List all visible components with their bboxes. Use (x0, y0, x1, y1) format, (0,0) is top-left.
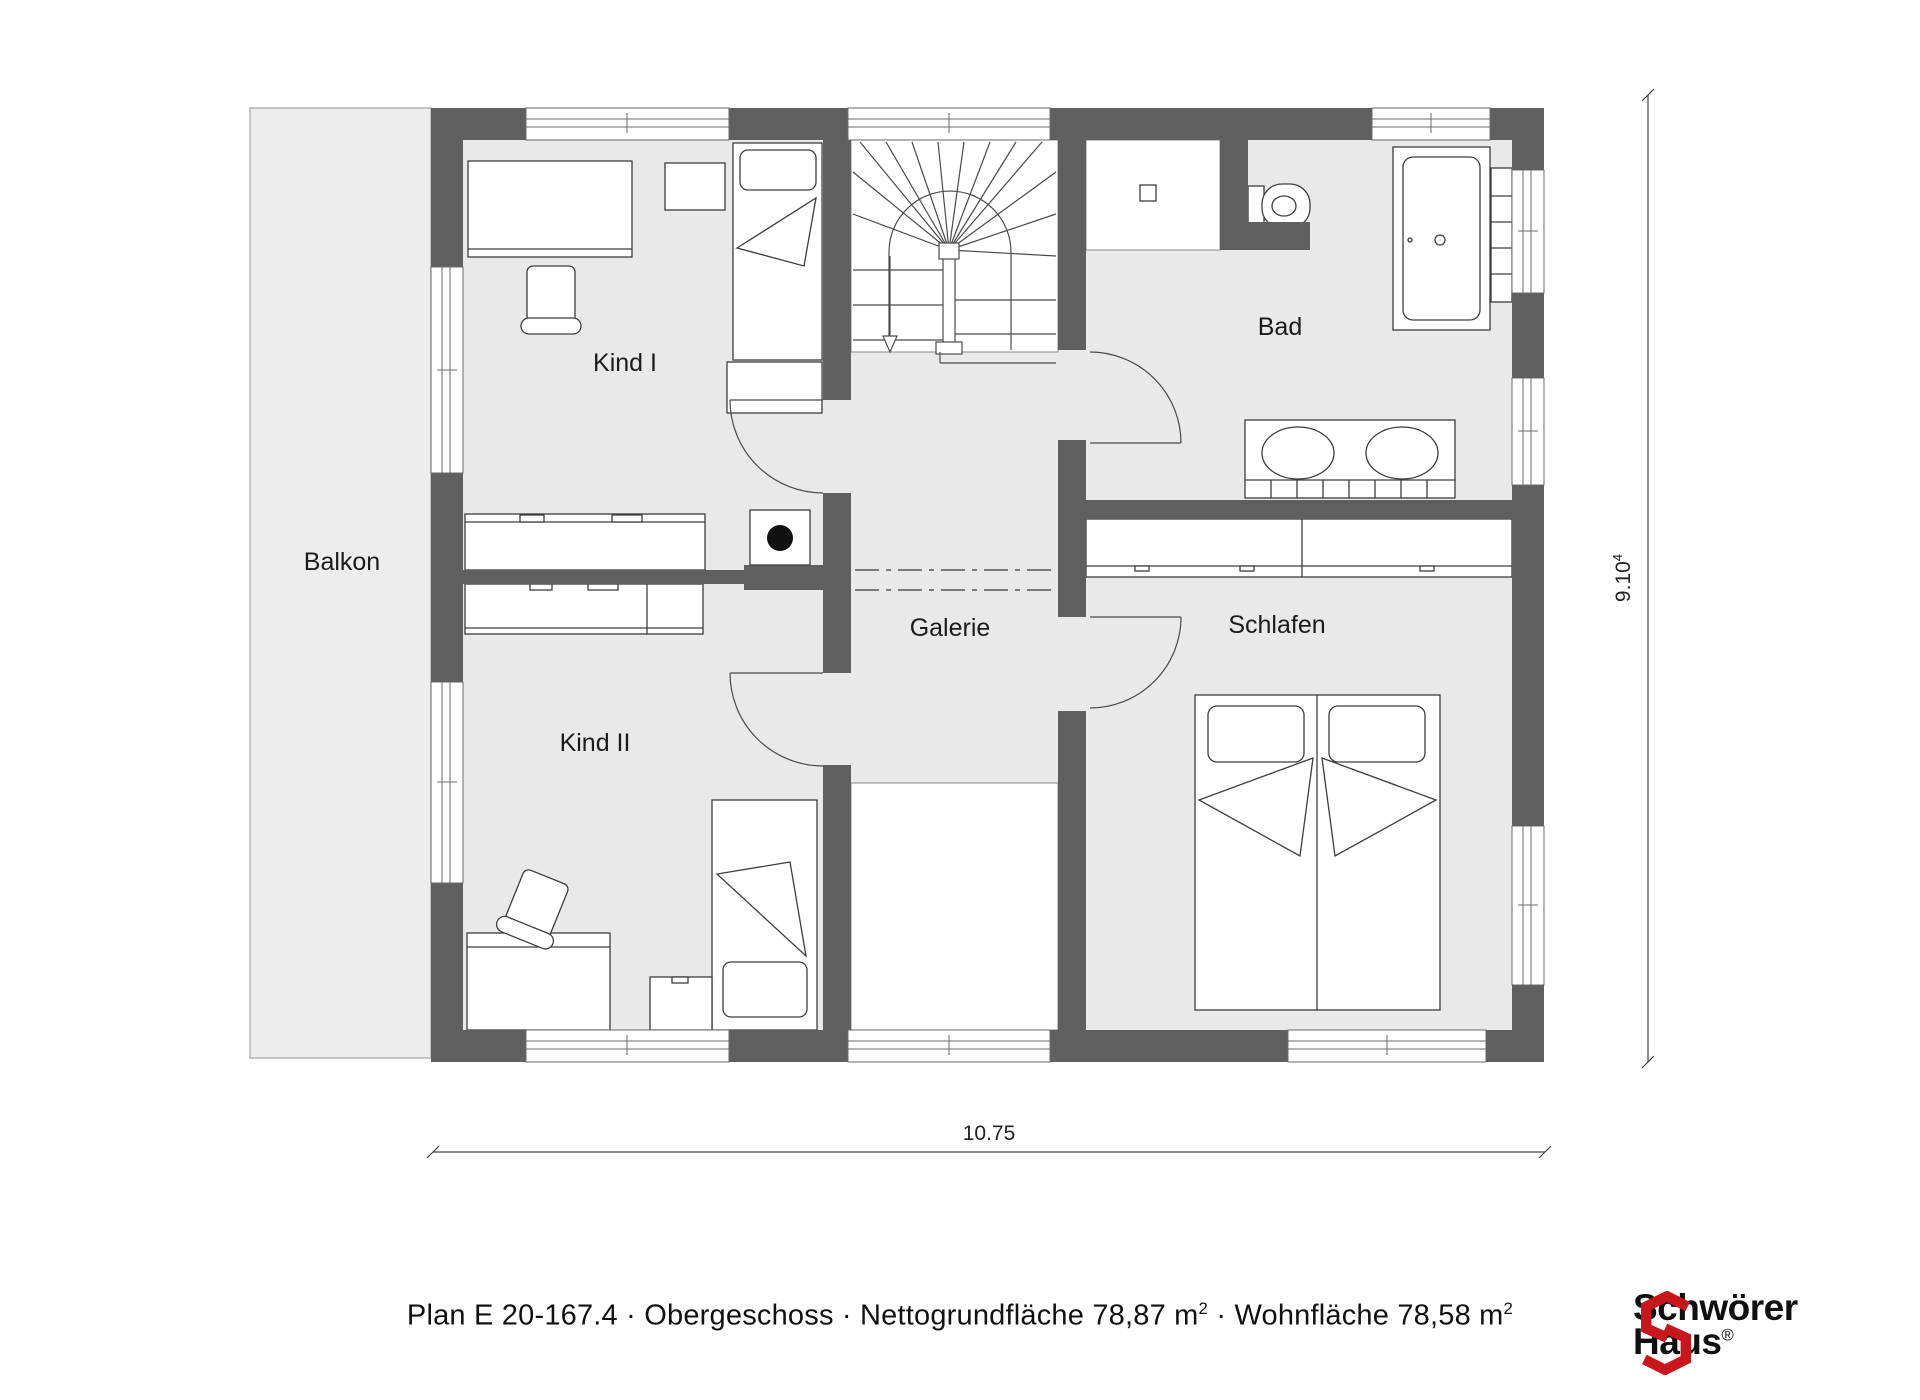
window (431, 267, 463, 473)
sink-right (1366, 427, 1438, 479)
room-label-balkon: Balkon (304, 548, 380, 576)
window (1372, 108, 1490, 140)
window (1288, 1030, 1486, 1062)
dimension-width-label: 10.75 (963, 1122, 1016, 1145)
window (848, 108, 1050, 140)
room-label-kind1: Kind I (593, 349, 657, 377)
void-opening (851, 783, 1058, 1030)
bathtub-drain (1435, 235, 1445, 245)
balcony-area (250, 108, 431, 1058)
window (526, 1030, 729, 1062)
chair-kind1 (527, 266, 575, 322)
wardrobe-schlafen (1086, 519, 1512, 577)
room-label-galerie: Galerie (910, 614, 991, 642)
window (1512, 170, 1544, 293)
plan-caption: Plan E 20-167.4 · Obergeschoss · Nettogr… (0, 1299, 1920, 1333)
room-label-kind2: Kind II (560, 729, 631, 757)
floor-plan-page: Balkon Kind I Kind II Galerie Bad Schlaf… (0, 0, 1920, 1400)
shower-drain (1140, 185, 1156, 201)
schwoerer-s-icon (1633, 1291, 1699, 1375)
pillow-right (1329, 706, 1425, 762)
window (526, 108, 729, 140)
window (848, 1030, 1050, 1062)
brand-logo: Schwörer Haus® (1633, 1291, 1798, 1360)
desk-kind1 (468, 161, 632, 257)
nightstand-kind1 (665, 163, 725, 210)
window (431, 682, 463, 883)
stair-newel-post (939, 243, 959, 259)
window (1512, 826, 1544, 985)
pillow-kind1 (740, 150, 816, 190)
dimension-height-label: 9.104 (1610, 554, 1635, 602)
nightstand-kind2 (650, 977, 712, 1030)
dresser-kind1 (727, 362, 822, 413)
sink-left (1262, 427, 1334, 479)
dimension-width: 10.75 (427, 1122, 1551, 1158)
room-label-schlafen: Schlafen (1228, 611, 1325, 639)
towel-radiator (1491, 168, 1512, 302)
floor-plan-drawing: Balkon Kind I Kind II Galerie Bad Schlaf… (0, 0, 1920, 1400)
dimension-height: 9.104 (1610, 89, 1654, 1068)
chimney-flue-dot (767, 525, 793, 551)
room-label-bad: Bad (1258, 313, 1302, 341)
window (1512, 378, 1544, 485)
pillow-left (1208, 706, 1304, 762)
pillow-kind2 (723, 962, 807, 1017)
registered-mark: ® (1721, 1326, 1733, 1345)
shelf-kind2 (465, 584, 703, 634)
